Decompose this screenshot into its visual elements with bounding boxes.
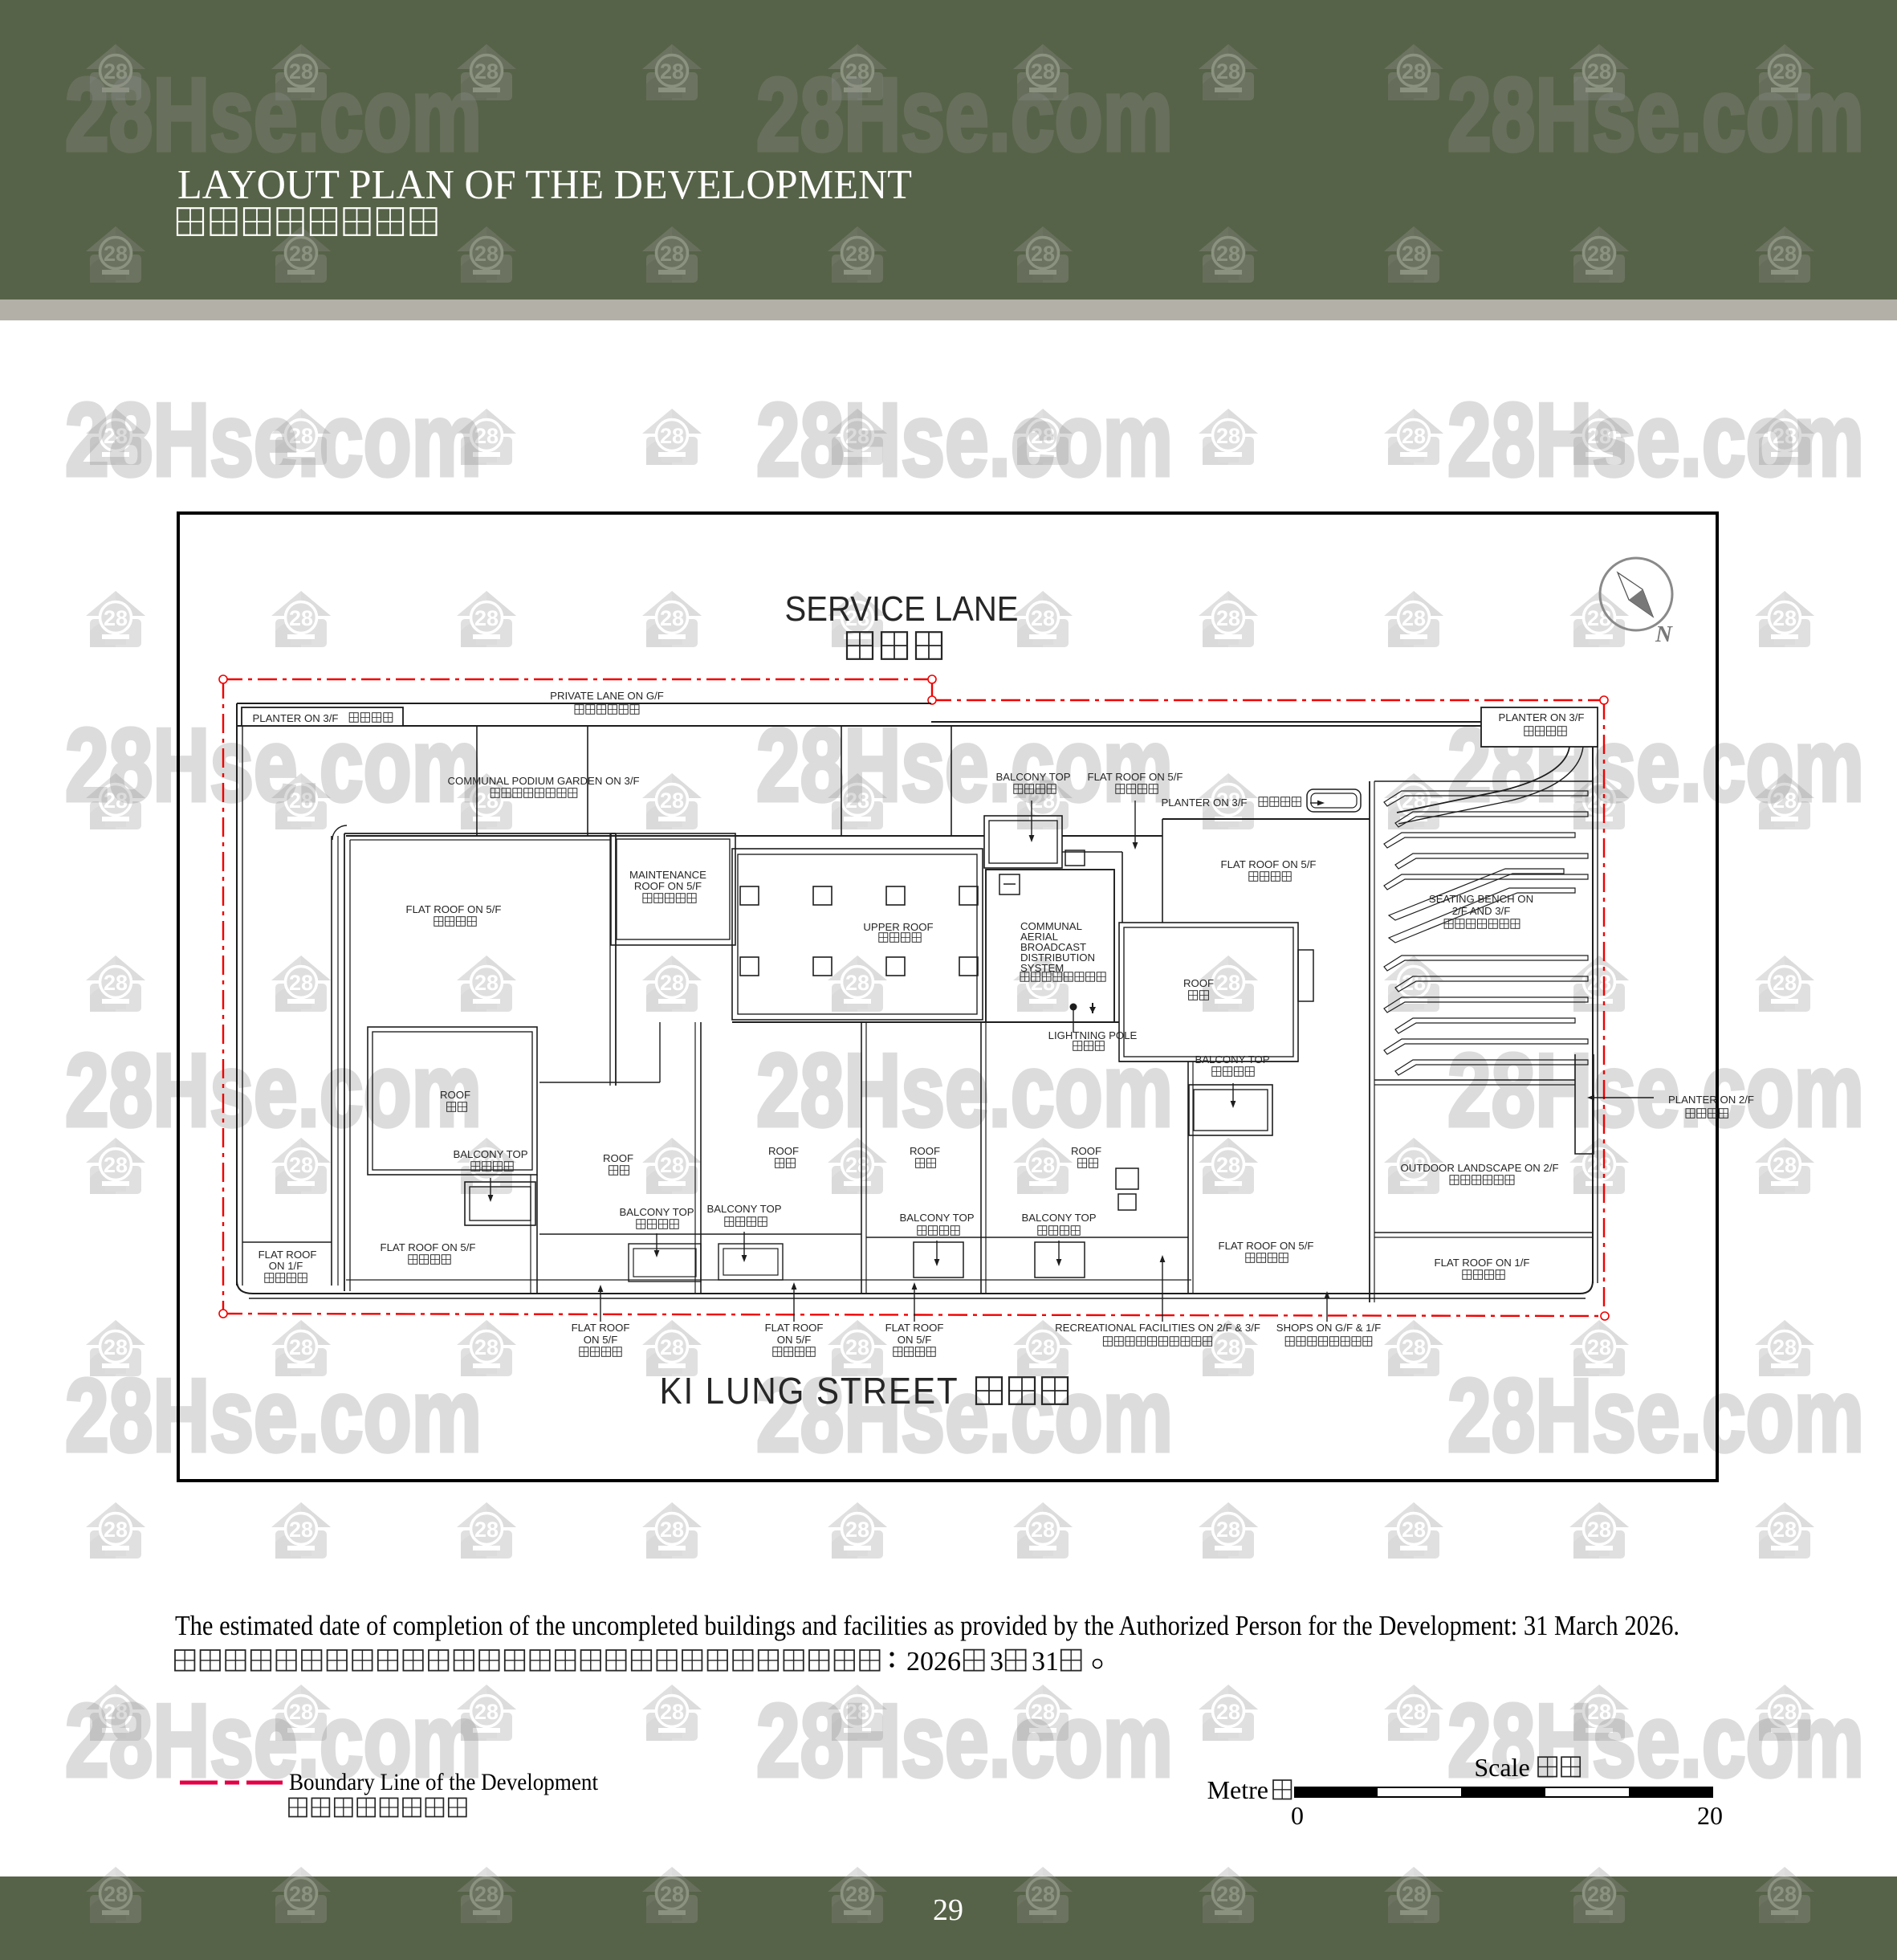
svg-text:UPPER ROOF: UPPER ROOF <box>863 921 933 933</box>
svg-text:0: 0 <box>1291 1801 1304 1830</box>
svg-text:ROOF: ROOF <box>603 1152 633 1164</box>
svg-text:FLAT ROOF ON 5/F: FLAT ROOF ON 5/F <box>1221 858 1317 870</box>
svg-text:PLANTER ON 2/F: PLANTER ON 2/F <box>1668 1094 1754 1106</box>
svg-text:Scale: Scale <box>1474 1753 1529 1782</box>
svg-text:ON 5/F: ON 5/F <box>584 1334 618 1346</box>
svg-text:FLAT ROOF ON 5/F: FLAT ROOF ON 5/F <box>1219 1240 1314 1252</box>
svg-text:SERVICE LANE: SERVICE LANE <box>785 589 1019 629</box>
svg-text:ON 5/F: ON 5/F <box>777 1334 812 1346</box>
svg-text:N: N <box>1655 621 1673 647</box>
svg-text:SEATING BENCH ON: SEATING BENCH ON <box>1429 893 1533 905</box>
svg-text:BALCONY TOP: BALCONY TOP <box>453 1148 527 1160</box>
svg-text:PLANTER ON 3/F: PLANTER ON 3/F <box>253 712 339 724</box>
svg-text:BALCONY TOP: BALCONY TOP <box>899 1212 974 1224</box>
svg-text:2/F AND 3/F: 2/F AND 3/F <box>1452 905 1511 917</box>
svg-text:PLANTER ON 3/F: PLANTER ON 3/F <box>1162 797 1248 809</box>
svg-text:FLAT ROOF: FLAT ROOF <box>765 1322 824 1334</box>
svg-text:FLAT ROOF ON 5/F: FLAT ROOF ON 5/F <box>1088 771 1183 783</box>
svg-text:SHOPS ON G/F & 1/F: SHOPS ON G/F & 1/F <box>1276 1322 1381 1334</box>
svg-text:ROOF ON 5/F: ROOF ON 5/F <box>634 880 702 892</box>
svg-text:Metre: Metre <box>1207 1775 1268 1804</box>
svg-text:29: 29 <box>933 1893 963 1927</box>
svg-text:FLAT ROOF ON 5/F: FLAT ROOF ON 5/F <box>381 1241 476 1253</box>
svg-text:RECREATIONAL FACILITIES ON 2/F: RECREATIONAL FACILITIES ON 2/F & 3/F <box>1055 1322 1260 1334</box>
svg-text:FLAT ROOF: FLAT ROOF <box>572 1322 630 1334</box>
svg-text:The estimated date of completi: The estimated date of completion of the … <box>175 1610 1679 1641</box>
svg-text:ROOF: ROOF <box>440 1089 470 1101</box>
svg-text:LIGHTNING POLE: LIGHTNING POLE <box>1048 1029 1138 1041</box>
svg-text:20: 20 <box>1697 1801 1723 1830</box>
svg-text:3: 3 <box>990 1647 1003 1677</box>
svg-text:FLAT ROOF ON 1/F: FLAT ROOF ON 1/F <box>1435 1257 1530 1269</box>
svg-text:ON 5/F: ON 5/F <box>898 1334 932 1346</box>
svg-text:FLAT ROOF: FLAT ROOF <box>885 1322 944 1334</box>
svg-text:OUTDOOR LANDSCAPE ON 2/F: OUTDOOR LANDSCAPE ON 2/F <box>1400 1162 1558 1174</box>
svg-text:FLAT ROOF: FLAT ROOF <box>258 1249 317 1261</box>
svg-text:ROOF: ROOF <box>910 1145 940 1157</box>
svg-text:PRIVATE LANE ON G/F: PRIVATE LANE ON G/F <box>550 690 664 702</box>
svg-text:ON 1/F: ON 1/F <box>269 1260 303 1272</box>
svg-text:BALCONY TOP: BALCONY TOP <box>1195 1053 1269 1066</box>
svg-text:Boundary Line of the Developme: Boundary Line of the Development <box>289 1769 599 1795</box>
svg-text:KI LUNG STREET: KI LUNG STREET <box>660 1370 959 1412</box>
svg-text:MAINTENANCE: MAINTENANCE <box>629 869 706 881</box>
svg-text:FLAT ROOF ON 5/F: FLAT ROOF ON 5/F <box>406 903 502 915</box>
svg-text:BALCONY TOP: BALCONY TOP <box>1021 1212 1096 1224</box>
svg-text:ROOF: ROOF <box>1183 977 1214 989</box>
svg-text:BALCONY TOP: BALCONY TOP <box>995 771 1070 783</box>
svg-text:ROOF: ROOF <box>1071 1145 1101 1157</box>
svg-text:2026: 2026 <box>906 1647 961 1677</box>
svg-text:BALCONY TOP: BALCONY TOP <box>619 1206 694 1218</box>
svg-text:31: 31 <box>1032 1647 1059 1677</box>
svg-text:LAYOUT PLAN OF THE DEVELOPMENT: LAYOUT PLAN OF THE DEVELOPMENT <box>177 162 912 208</box>
svg-text:COMMUNAL PODIUM GARDEN ON 3/F: COMMUNAL PODIUM GARDEN ON 3/F <box>447 775 639 787</box>
svg-text:BALCONY TOP: BALCONY TOP <box>706 1203 781 1215</box>
svg-text:PLANTER ON 3/F: PLANTER ON 3/F <box>1499 711 1585 723</box>
svg-text:ROOF: ROOF <box>768 1145 799 1157</box>
